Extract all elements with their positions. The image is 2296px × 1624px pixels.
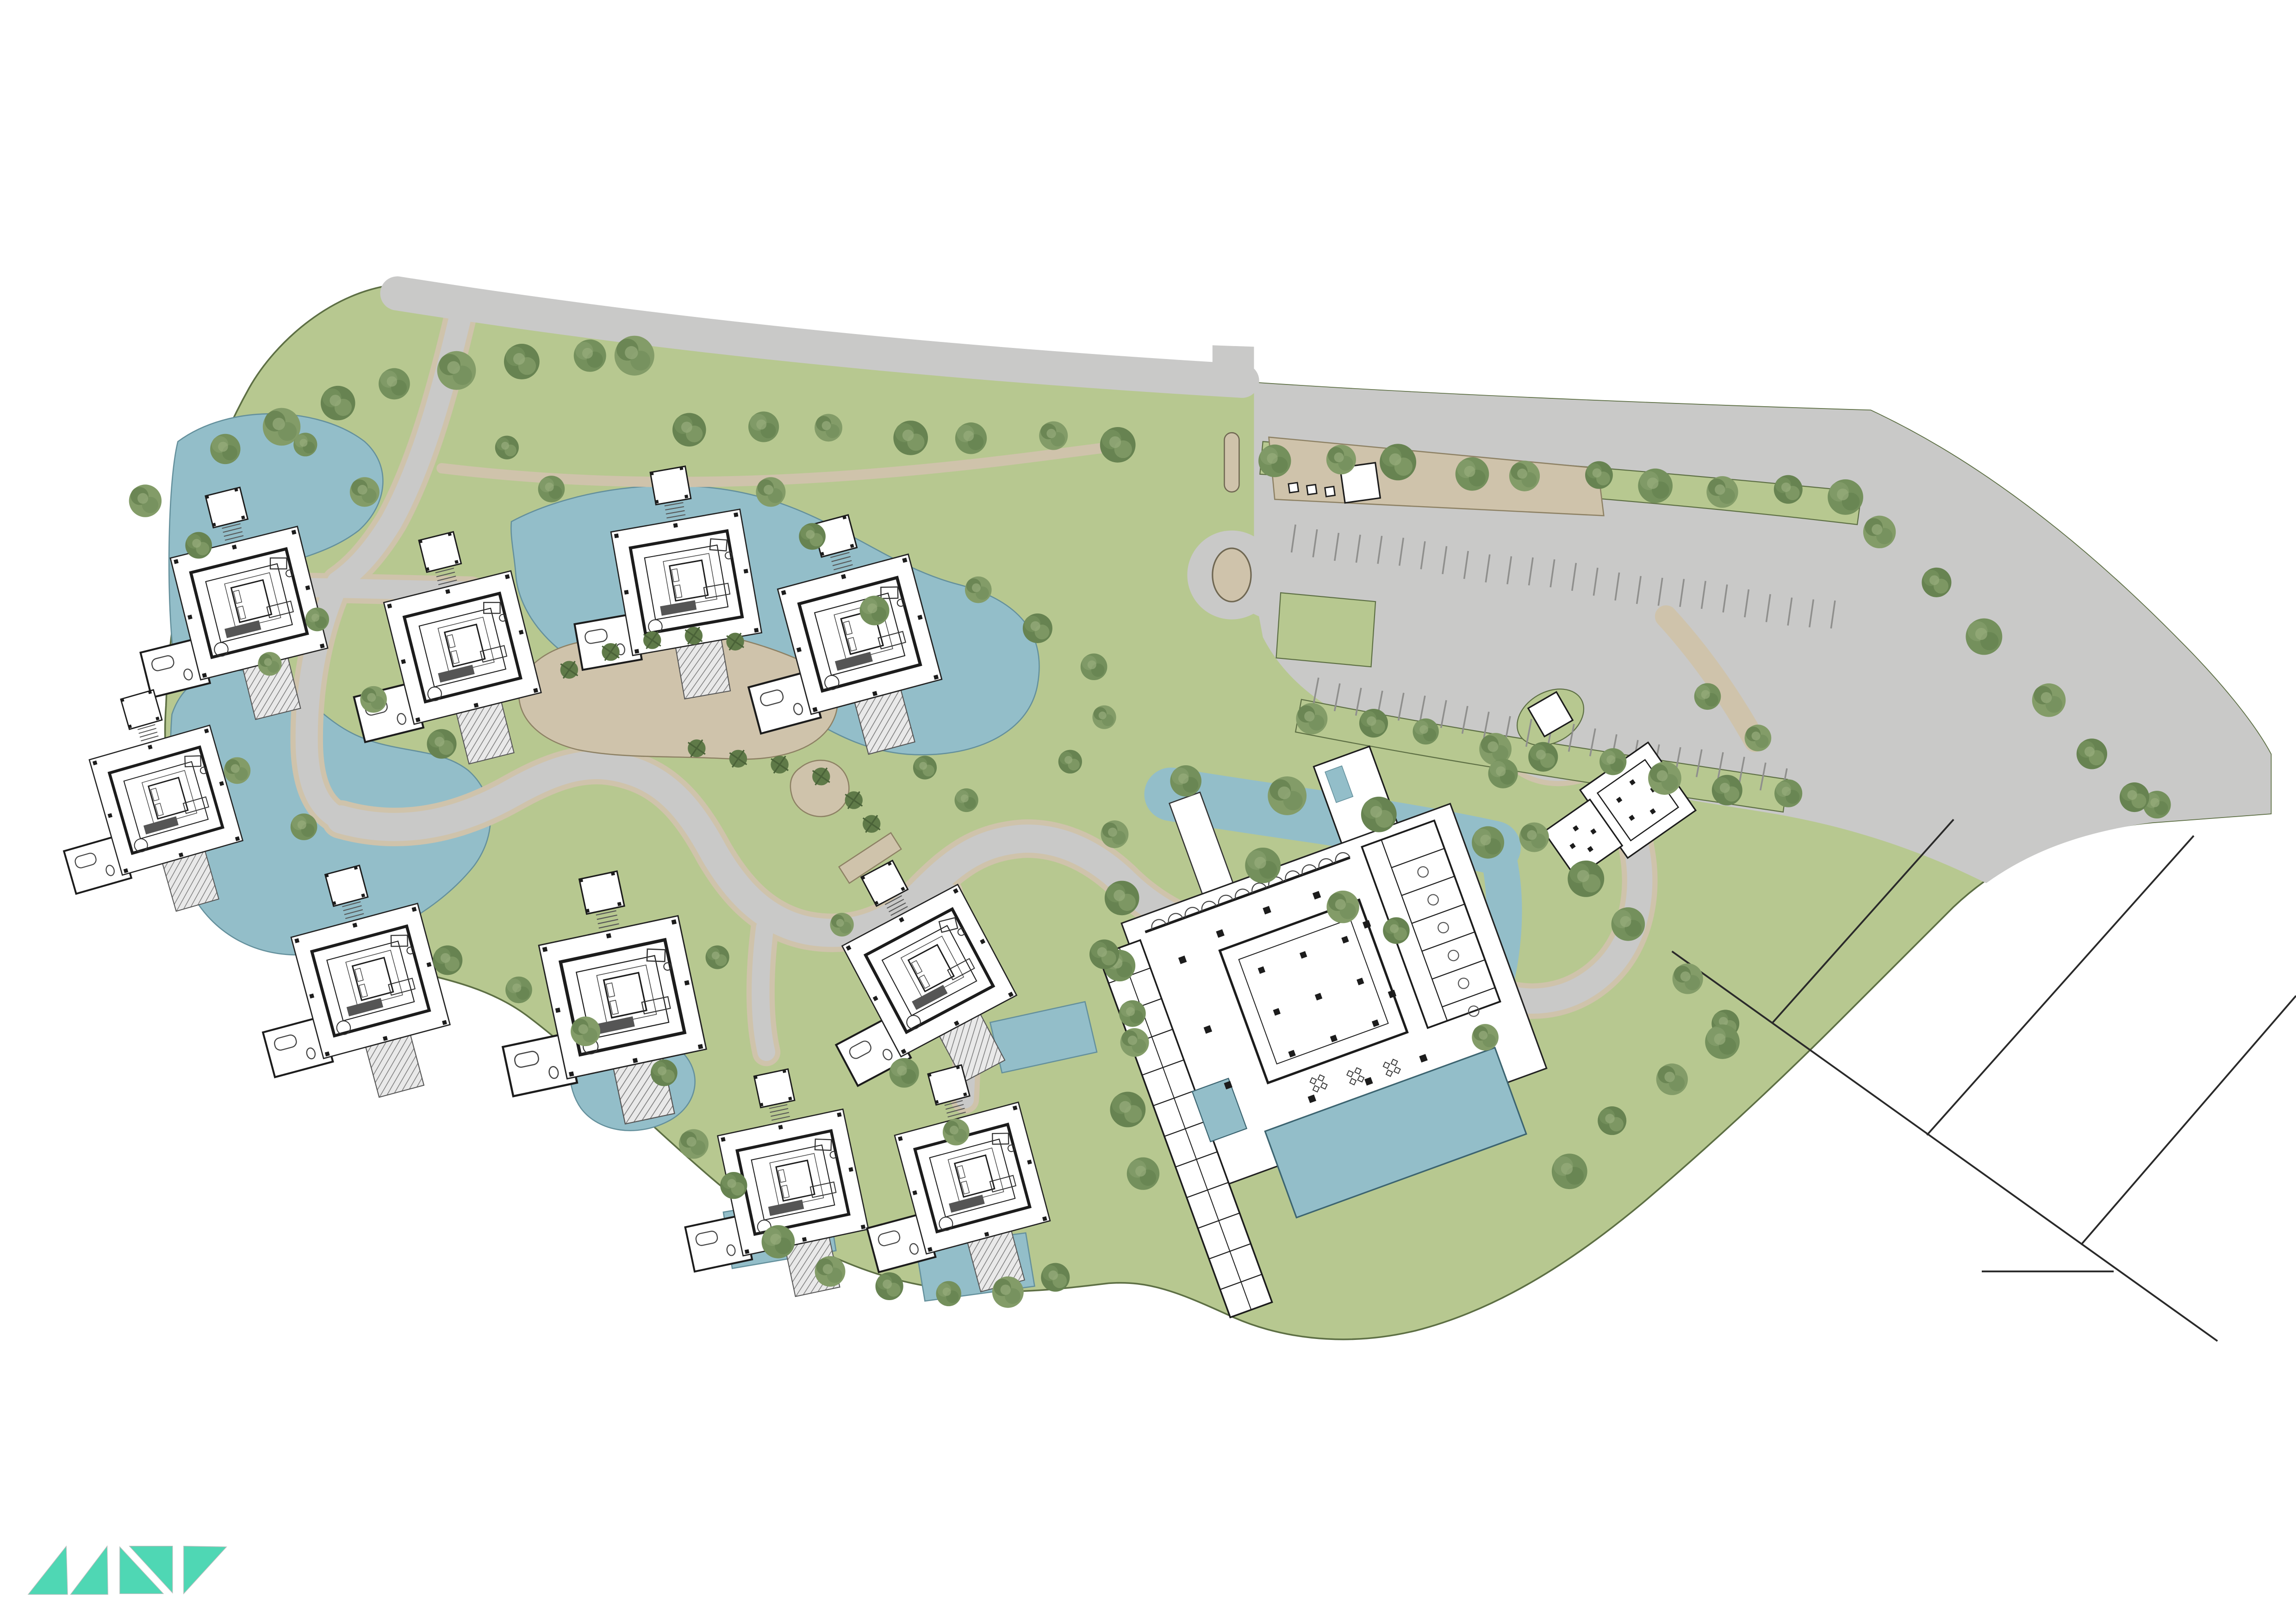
logo-triangle-1 xyxy=(28,1546,68,1594)
tree xyxy=(679,1129,709,1159)
tree-highlight xyxy=(950,1126,958,1134)
platform-column xyxy=(614,533,619,538)
tree xyxy=(1472,826,1504,859)
tree-highlight xyxy=(1389,453,1401,465)
tree xyxy=(1863,516,1896,548)
tree-highlight xyxy=(1267,453,1277,464)
palm-tree xyxy=(685,627,703,645)
tree-highlight xyxy=(823,1264,833,1274)
tree-highlight xyxy=(1480,835,1491,845)
tree-highlight xyxy=(1593,468,1602,477)
tree-highlight xyxy=(1752,731,1761,740)
platform-column xyxy=(698,1044,703,1049)
tree xyxy=(185,532,212,559)
bed xyxy=(604,973,646,1017)
tree-highlight xyxy=(501,442,509,450)
tree-highlight xyxy=(1929,575,1939,585)
tree-highlight xyxy=(1701,690,1710,699)
tree-highlight xyxy=(836,919,844,927)
tree xyxy=(1599,748,1626,775)
tree-highlight xyxy=(218,442,228,452)
tree xyxy=(129,484,162,517)
tree xyxy=(1296,703,1327,734)
tree-highlight xyxy=(2150,798,2159,807)
tree-highlight xyxy=(1517,469,1527,479)
tree-highlight xyxy=(1872,524,1882,535)
tree xyxy=(705,945,729,969)
tree xyxy=(1509,461,1540,491)
tree-highlight xyxy=(1714,1034,1726,1045)
platform-column xyxy=(673,523,678,527)
tree xyxy=(1712,775,1742,806)
tree xyxy=(815,1256,846,1287)
tree xyxy=(830,913,854,936)
tree-highlight xyxy=(1334,452,1344,462)
tree-highlight xyxy=(1088,660,1096,669)
tree-highlight xyxy=(582,348,593,359)
villa9-driveway xyxy=(760,928,766,1052)
tree-highlight xyxy=(231,764,240,773)
tree xyxy=(1552,1153,1587,1189)
tree xyxy=(1023,614,1052,643)
tree xyxy=(291,813,317,840)
tree xyxy=(1245,848,1281,883)
villa-entry-pavilion xyxy=(650,466,691,505)
tree xyxy=(1456,457,1489,491)
tree xyxy=(1966,619,2002,655)
tree xyxy=(1058,750,1082,774)
platform-column xyxy=(744,569,748,573)
tree xyxy=(913,756,937,779)
tree xyxy=(1170,765,1201,797)
tree xyxy=(860,595,890,625)
tree-highlight xyxy=(441,953,450,963)
tree-highlight xyxy=(1109,436,1121,448)
pavilion-column xyxy=(679,466,683,470)
platform-column xyxy=(721,1137,725,1141)
tree-highlight xyxy=(1664,1072,1675,1082)
tree xyxy=(1127,1157,1159,1190)
tree xyxy=(720,1172,747,1199)
tree-highlight xyxy=(943,1288,951,1296)
tree xyxy=(1472,1024,1499,1051)
tree-highlight xyxy=(1837,489,1848,500)
tree xyxy=(1413,719,1439,744)
tree xyxy=(2032,683,2066,717)
tree-highlight xyxy=(1114,890,1125,901)
tree-highlight xyxy=(1577,870,1589,882)
tree xyxy=(615,336,654,376)
pavilion-column xyxy=(650,471,653,475)
tree-highlight xyxy=(387,376,397,386)
tree-highlight xyxy=(1561,1163,1573,1174)
platform-column xyxy=(542,947,548,952)
tree xyxy=(504,344,540,379)
tree xyxy=(258,652,281,676)
palm-tree xyxy=(845,791,863,809)
tree-highlight xyxy=(1099,712,1107,719)
pavilion-column xyxy=(655,500,659,503)
tree-highlight xyxy=(435,737,444,746)
tree xyxy=(1705,1024,1740,1059)
logo-triangle-4 xyxy=(184,1546,227,1594)
platform-column xyxy=(754,628,759,632)
tree xyxy=(1585,461,1613,489)
tree xyxy=(955,422,987,454)
tree-highlight xyxy=(1031,621,1040,631)
tree xyxy=(1656,1064,1688,1095)
roundabout-island xyxy=(1213,548,1251,601)
tree xyxy=(762,1225,795,1258)
gate-lawn xyxy=(1276,593,1376,667)
tree xyxy=(1041,1263,1070,1292)
tree xyxy=(293,433,317,456)
bed xyxy=(670,560,708,601)
tree-highlight xyxy=(764,485,773,495)
tree-highlight xyxy=(1527,830,1537,840)
tree xyxy=(943,1119,970,1146)
tree xyxy=(1598,1106,1626,1135)
entry-median-island xyxy=(1224,433,1239,492)
platform-column xyxy=(848,1167,853,1172)
pavilion-column xyxy=(783,1069,786,1073)
tree-highlight xyxy=(1464,466,1475,477)
tree xyxy=(1326,891,1359,923)
tree-highlight xyxy=(897,1066,907,1075)
platform-column xyxy=(837,1112,841,1117)
tree-highlight xyxy=(972,583,981,592)
tree xyxy=(1120,1028,1149,1057)
tree-highlight xyxy=(681,421,692,433)
tree-highlight xyxy=(727,1179,736,1188)
tree xyxy=(1092,705,1116,729)
tree xyxy=(427,729,456,759)
tree-highlight xyxy=(1064,756,1072,764)
tree xyxy=(538,476,565,502)
tree xyxy=(379,368,410,400)
tree xyxy=(1101,820,1128,848)
platform-column xyxy=(606,933,611,938)
tree-highlight xyxy=(512,984,521,992)
tree-highlight xyxy=(625,346,638,359)
tree xyxy=(936,1281,961,1306)
tree-highlight xyxy=(1335,899,1346,910)
tree-highlight xyxy=(579,1024,588,1034)
tree-highlight xyxy=(1715,484,1725,495)
palm-tree xyxy=(771,756,788,773)
tree xyxy=(1326,445,1356,474)
platform-column xyxy=(778,1125,783,1129)
tree-highlight xyxy=(1367,716,1376,726)
tree-highlight xyxy=(1647,477,1659,489)
tree-highlight xyxy=(770,1234,781,1245)
tree xyxy=(224,757,251,784)
tree-highlight xyxy=(192,539,201,548)
palm-tree xyxy=(560,661,578,678)
tree-highlight xyxy=(367,693,376,702)
palm-tree xyxy=(688,739,705,757)
tree-highlight xyxy=(1536,750,1546,759)
tree xyxy=(1383,917,1410,944)
tree-highlight xyxy=(1975,628,1987,640)
tree xyxy=(1361,797,1397,832)
tree-highlight xyxy=(2128,790,2137,800)
tree xyxy=(433,945,462,975)
tree-highlight xyxy=(1781,483,1791,492)
tree-highlight xyxy=(1680,971,1691,981)
tree xyxy=(321,386,355,421)
palm-tree xyxy=(643,631,661,649)
tree-highlight xyxy=(1126,1007,1135,1016)
tree xyxy=(1568,861,1604,897)
tree-highlight xyxy=(311,614,319,621)
mnv-logo xyxy=(28,1546,227,1594)
palm-tree xyxy=(602,643,619,661)
tree xyxy=(1105,881,1139,916)
platform-column xyxy=(861,1225,865,1229)
tree xyxy=(1258,445,1291,477)
tree xyxy=(1380,444,1416,480)
palm-tree xyxy=(812,768,830,785)
gate-kiosk xyxy=(1288,483,1299,493)
tree-highlight xyxy=(1048,1271,1058,1280)
tree-highlight xyxy=(1479,1031,1487,1040)
tree-highlight xyxy=(1370,806,1382,818)
site-plan-canvas xyxy=(0,0,2296,1624)
parcel-line xyxy=(1672,951,2218,1341)
tree-highlight xyxy=(1001,1284,1011,1295)
platform-column xyxy=(624,590,628,595)
pavilion-column xyxy=(754,1075,758,1079)
tree-highlight xyxy=(883,1279,892,1289)
tree xyxy=(1745,725,1772,751)
tree-highlight xyxy=(298,820,306,829)
pavilion-column xyxy=(579,878,583,882)
tree xyxy=(992,1277,1024,1308)
platform-column xyxy=(734,512,738,517)
tree-highlight xyxy=(513,353,525,365)
tree-highlight xyxy=(1657,770,1668,781)
tree xyxy=(756,477,785,507)
tree xyxy=(1119,1000,1146,1027)
tree xyxy=(672,413,706,446)
tree-highlight xyxy=(1487,741,1498,752)
platform-column xyxy=(635,649,639,654)
tree-highlight xyxy=(822,421,831,430)
tree xyxy=(1081,653,1108,680)
tree xyxy=(1519,822,1549,852)
tree-highlight xyxy=(1119,1101,1131,1113)
tree xyxy=(1922,568,1951,597)
tree-highlight xyxy=(2041,692,2052,703)
pavilion-column xyxy=(788,1097,792,1100)
tree-highlight xyxy=(1419,725,1428,734)
pavilion-column xyxy=(684,495,688,498)
tree-highlight xyxy=(1135,1166,1146,1177)
tree xyxy=(2077,738,2107,769)
tree-highlight xyxy=(1178,774,1188,784)
tree-highlight xyxy=(273,418,285,430)
pavilion-column xyxy=(585,909,590,913)
tree-highlight xyxy=(330,395,341,406)
tree xyxy=(505,977,532,1004)
tree xyxy=(1706,476,1738,508)
tree xyxy=(1774,780,1802,807)
tree xyxy=(799,523,826,550)
tree-highlight xyxy=(1304,711,1314,721)
palm-tree xyxy=(863,815,880,832)
tree xyxy=(1612,907,1645,941)
palm-tree xyxy=(729,750,747,768)
tree-highlight xyxy=(1097,947,1107,957)
tree-highlight xyxy=(1254,857,1266,868)
villa-deck-jetty xyxy=(676,640,730,699)
tree xyxy=(574,340,606,372)
gate-kiosk xyxy=(1325,486,1335,496)
tree xyxy=(305,607,329,631)
tree xyxy=(1528,742,1558,772)
tree xyxy=(1828,479,1863,515)
tree-highlight xyxy=(1496,766,1506,776)
villa-entry-pavilion xyxy=(754,1069,795,1108)
pavilion-column xyxy=(759,1103,763,1106)
tree-highlight xyxy=(1278,787,1291,800)
palm-tree xyxy=(726,633,744,651)
tree-highlight xyxy=(964,431,974,441)
tree xyxy=(815,414,842,441)
tree-highlight xyxy=(961,794,969,802)
tree-highlight xyxy=(447,361,460,374)
tree-highlight xyxy=(264,658,272,666)
tree-highlight xyxy=(1046,429,1056,438)
tree xyxy=(1039,421,1068,450)
tree-highlight xyxy=(756,420,766,430)
tree-highlight xyxy=(919,762,927,770)
tree xyxy=(893,421,928,455)
pavilion-column xyxy=(617,902,622,906)
tree xyxy=(651,1060,678,1086)
tree xyxy=(437,351,476,390)
platform-column xyxy=(555,1008,560,1013)
bed xyxy=(776,1160,815,1201)
tree-highlight xyxy=(712,952,720,960)
tree xyxy=(1100,427,1136,463)
tree-highlight xyxy=(1390,924,1399,933)
tree xyxy=(1110,1092,1145,1128)
tree-highlight xyxy=(299,439,307,447)
tree-highlight xyxy=(1605,1114,1614,1123)
tree xyxy=(890,1058,919,1088)
tree xyxy=(210,434,240,464)
tree xyxy=(2120,782,2149,812)
pavilion-column xyxy=(611,872,615,876)
tree xyxy=(748,411,779,442)
tree xyxy=(571,1017,600,1046)
tree-highlight xyxy=(1720,783,1730,793)
tree-highlight xyxy=(687,1137,697,1147)
tree-highlight xyxy=(806,530,815,539)
tree-highlight xyxy=(658,1066,666,1075)
parcel-line xyxy=(2081,996,2296,1245)
tree-highlight xyxy=(545,483,554,491)
tree-highlight xyxy=(137,493,148,504)
tree-highlight xyxy=(867,603,877,613)
tree xyxy=(1359,709,1388,738)
tree xyxy=(955,788,978,812)
platform-column xyxy=(569,1072,574,1077)
tree xyxy=(1648,762,1681,795)
tree-highlight xyxy=(902,429,914,441)
villa-entry-pavilion xyxy=(579,871,624,914)
tree xyxy=(495,436,519,459)
tree-highlight xyxy=(1128,1035,1137,1045)
logo-triangle-2 xyxy=(70,1546,108,1594)
tree xyxy=(1488,759,1518,788)
tree-highlight xyxy=(1620,916,1631,927)
tree xyxy=(965,576,992,603)
tree xyxy=(1089,940,1119,969)
tree xyxy=(1774,475,1803,504)
tree-highlight xyxy=(1108,828,1117,837)
tree xyxy=(350,477,380,507)
tree xyxy=(1694,683,1721,710)
tree xyxy=(1268,776,1307,815)
tree-highlight xyxy=(1782,787,1791,796)
platform-column xyxy=(633,1058,638,1063)
entry-steps xyxy=(139,728,156,733)
gate-kiosk xyxy=(1307,484,1317,495)
platform-column xyxy=(802,1237,807,1242)
tree xyxy=(876,1272,903,1300)
tree-highlight xyxy=(1606,755,1615,764)
entry-steps xyxy=(140,732,157,737)
platform-column xyxy=(745,1249,749,1254)
platform-column xyxy=(684,980,690,986)
tree xyxy=(1673,963,1703,994)
tree xyxy=(1638,469,1673,503)
platform-column xyxy=(672,919,677,924)
tree-highlight xyxy=(2084,746,2095,756)
tree xyxy=(360,686,387,713)
tree-highlight xyxy=(358,485,367,495)
